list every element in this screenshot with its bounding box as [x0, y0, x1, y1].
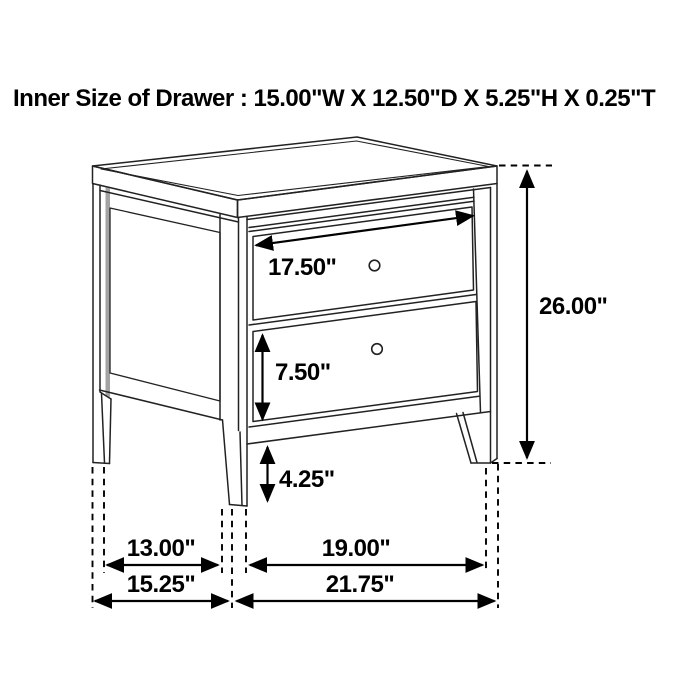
top-drawer-knob — [369, 260, 380, 271]
front-right-leg — [457, 413, 491, 464]
tabletop-bevel — [101, 141, 489, 196]
dim-label-top-drawer-width: 17.50" — [268, 256, 336, 280]
side-recessed-panel — [110, 208, 220, 401]
left-side-panel — [93, 184, 247, 507]
dim-label-overall-depth: 15.25" — [127, 573, 195, 597]
dim-label-overall-width: 21.75" — [326, 573, 394, 597]
tabletop — [93, 137, 498, 218]
dim-arrow-top-drawer-width — [256, 216, 473, 246]
dim-label-leg-clearance: 4.25" — [279, 468, 335, 492]
rear-left-leg — [93, 392, 111, 464]
diagram-canvas: Inner Size of Drawer : 15.00"W X 12.50"D… — [0, 0, 700, 700]
bottom-drawer-knob — [372, 344, 383, 355]
nightstand-drawing — [93, 137, 498, 506]
dim-label-side-leg-spacing: 13.00" — [127, 537, 195, 561]
page-title: Inner Size of Drawer : 15.00"W X 12.50"D… — [13, 87, 655, 111]
dim-label-front-leg-spacing: 19.00" — [322, 537, 390, 561]
side-panel-shadow — [106, 188, 111, 398]
dim-label-bottom-drawer-height: 7.50" — [275, 361, 331, 385]
dim-label-overall-height: 26.00" — [539, 295, 607, 319]
front-left-leg — [223, 420, 248, 506]
